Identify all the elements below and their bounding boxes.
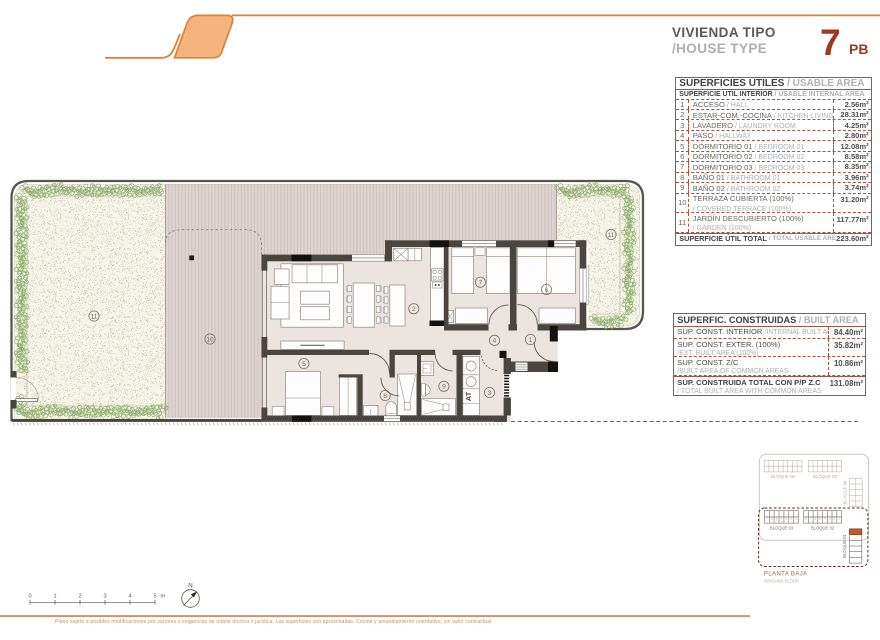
- svg-text:9: 9: [442, 384, 446, 391]
- svg-text:BLOQUE 05: BLOQUE 05: [813, 474, 837, 479]
- svg-text:0: 0: [28, 594, 31, 600]
- svg-text:10: 10: [206, 336, 214, 343]
- svg-text:m: m: [161, 594, 166, 600]
- svg-text:BLOQUE 04: BLOQUE 04: [843, 480, 848, 504]
- svg-text:BLOQUE 03: BLOQUE 03: [770, 525, 794, 530]
- svg-text:N: N: [188, 583, 192, 590]
- svg-text:/GROUND FLOOR: /GROUND FLOOR: [764, 579, 799, 584]
- svg-text:4: 4: [128, 594, 131, 600]
- svg-text:AT: AT: [464, 391, 473, 401]
- svg-text:BLOQUE 01: BLOQUE 01: [842, 533, 847, 557]
- svg-text:11: 11: [91, 313, 98, 320]
- svg-text:3: 3: [488, 390, 492, 397]
- svg-text:BLOQUE 06: BLOQUE 06: [771, 474, 795, 479]
- svg-text:2: 2: [78, 594, 81, 600]
- svg-text:6: 6: [545, 287, 549, 294]
- svg-text:7: 7: [479, 280, 483, 287]
- svg-text:8: 8: [383, 393, 387, 400]
- svg-text:PLANTA BAJA: PLANTA BAJA: [764, 571, 808, 578]
- svg-text:2: 2: [412, 306, 416, 313]
- svg-text:1: 1: [529, 337, 533, 344]
- svg-text:4: 4: [493, 338, 497, 345]
- svg-text:3: 3: [103, 594, 106, 600]
- svg-text:5: 5: [153, 594, 156, 600]
- svg-text:1: 1: [53, 594, 56, 600]
- svg-text:Plano sujeto a posibles modifi: Plano sujeto a posibles modificaciones p…: [55, 619, 493, 625]
- svg-text:5: 5: [302, 361, 306, 368]
- svg-text:11: 11: [608, 232, 615, 239]
- svg-text:BLOQUE 02: BLOQUE 02: [811, 525, 835, 530]
